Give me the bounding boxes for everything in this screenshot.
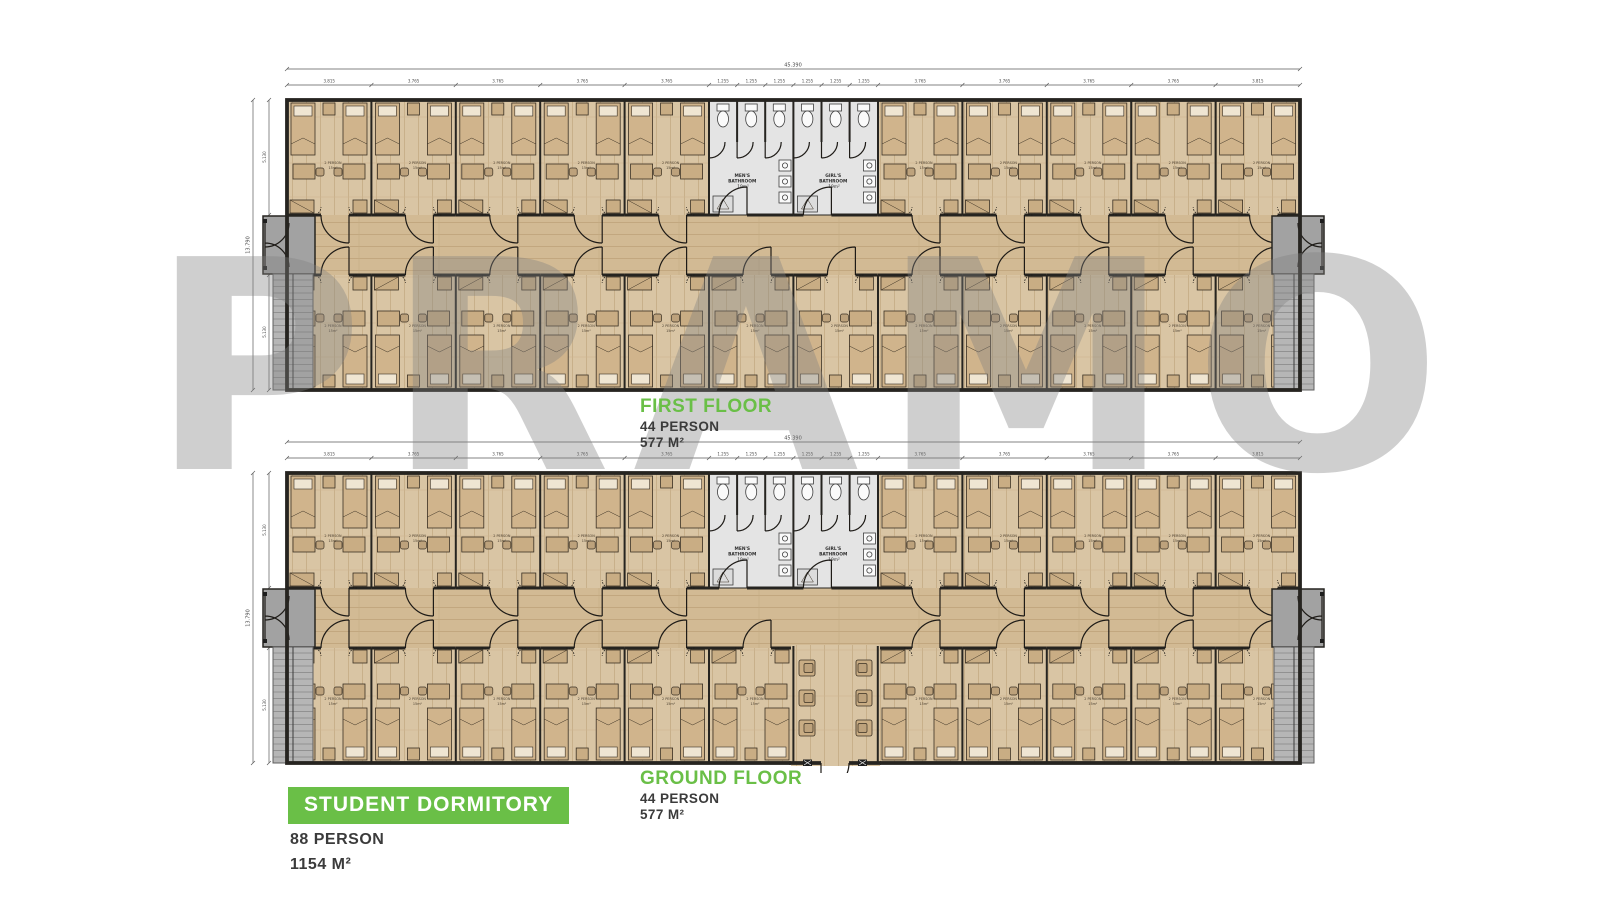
first-floor-label: FIRST FLOOR 44 PERSON 577 M²: [640, 396, 772, 450]
ground-floor-label: GROUND FLOOR 44 PERSON 577 M²: [640, 768, 802, 822]
entrance-lobby: [789, 645, 881, 773]
project-person: 88 PERSON: [290, 831, 569, 849]
ground-floor-plan: [237, 428, 1337, 773]
project-title-block: STUDENT DORMITORY 88 PERSON 1154 M²: [288, 787, 569, 874]
page: 2 PERSON 15m²: [0, 0, 1600, 900]
first-floor-title: FIRST FLOOR: [640, 396, 772, 418]
ground-floor-person: 44 PERSON: [640, 791, 802, 806]
first-floor-plan: [237, 55, 1337, 400]
project-title: STUDENT DORMITORY: [288, 787, 569, 824]
ground-floor-title: GROUND FLOOR: [640, 768, 802, 790]
ground-floor-area: 577 M²: [640, 807, 802, 822]
first-floor-area: 577 M²: [640, 435, 772, 450]
first-floor-person: 44 PERSON: [640, 419, 772, 434]
project-area: 1154 M²: [290, 856, 569, 874]
